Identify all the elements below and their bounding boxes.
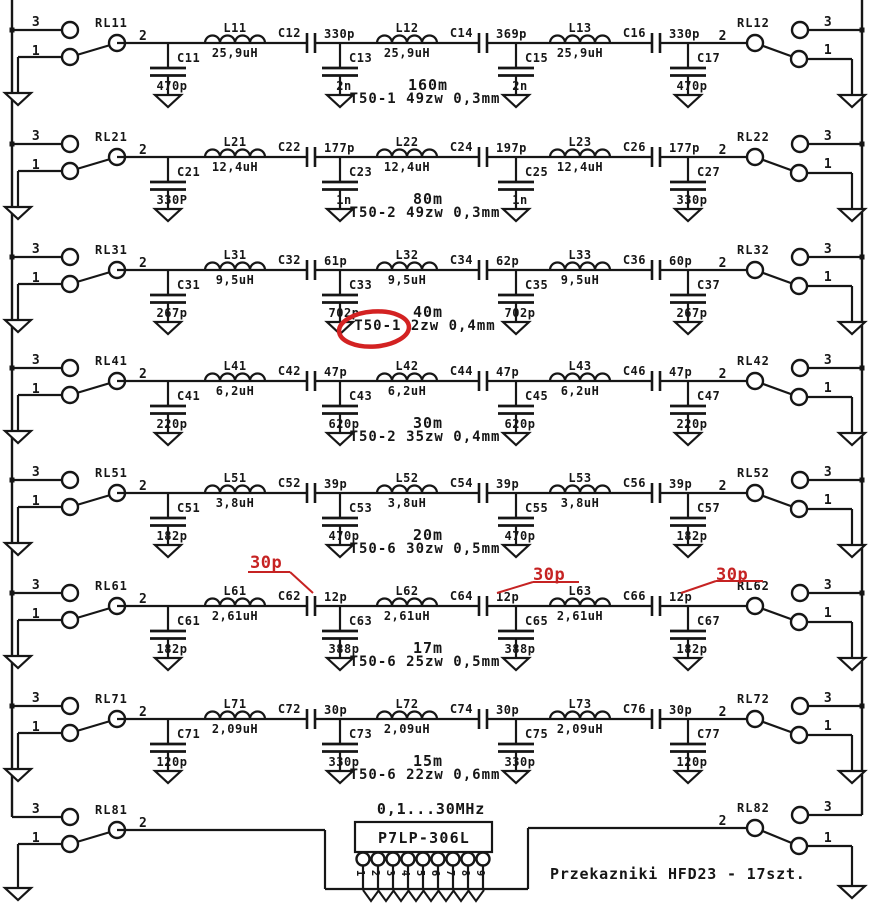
relay-pin-1-label: 1: [32, 494, 40, 509]
inductor-ref: L31: [223, 248, 246, 262]
capacitor-value: 30p: [496, 703, 519, 717]
relay-pin-2-label: 2: [719, 367, 727, 382]
relay-contact: [62, 49, 78, 65]
inductor-ref: L11: [223, 21, 246, 35]
capacitor-value: 470p: [505, 529, 536, 543]
relay-pin-1-label: 1: [32, 271, 40, 286]
inductor-ref: L63: [568, 584, 591, 598]
capacitor-ref: C33: [349, 278, 372, 292]
relay-pin-2-label: 2: [139, 256, 147, 271]
relay-pin-3-label: 3: [32, 129, 40, 144]
relay-contact: [792, 249, 808, 265]
toroid-winding-label: T50-6 22zw 0,6mm: [350, 767, 501, 783]
relay-ref-label: RL51: [95, 466, 128, 480]
junction-dot: [860, 255, 865, 260]
junction-dot: [860, 366, 865, 371]
relay-ref-label: RL42: [737, 354, 770, 368]
toroid-winding-label: T50-6 30zw 0,5mm: [350, 541, 501, 557]
connector-pin-number: 2: [369, 870, 381, 876]
connector-pin-number: 8: [459, 870, 471, 876]
relay-ref-label: RL81: [95, 803, 128, 817]
capacitor-ref: C34: [450, 253, 473, 267]
inductor-ref: L52: [395, 471, 418, 485]
capacitor-value: 182p: [677, 642, 708, 656]
relay-pin-2-label: 2: [719, 479, 727, 494]
inductor-ref: L12: [395, 21, 418, 35]
relay-contact: [791, 838, 807, 854]
connector-pin-circle: [462, 853, 475, 866]
capacitor-ref: C31: [177, 278, 200, 292]
relay-pin-1-label: 1: [824, 381, 832, 396]
relay-pin-3-label: 3: [824, 353, 832, 368]
relay-pin-1-label: 1: [824, 719, 832, 734]
capacitor-value: 30p: [669, 703, 692, 717]
capacitor-value: 182p: [157, 529, 188, 543]
relay-ref-label: RL52: [737, 466, 770, 480]
inductor-ref: L23: [568, 135, 591, 149]
relay-contact: [791, 165, 807, 181]
capacitor-ref: C36: [623, 253, 646, 267]
capacitor-value: 12p: [669, 590, 692, 604]
relay-pin-1-label: 1: [824, 157, 832, 172]
relay-contact: [791, 278, 807, 294]
relay-contact: [792, 22, 808, 38]
capacitor-ref: C27: [697, 165, 720, 179]
relay-ref-label: RL82: [737, 801, 770, 815]
capacitor-ref: C13: [349, 51, 372, 65]
relay-contact: [62, 585, 78, 601]
relay-pin-3-label: 3: [824, 465, 832, 480]
inductor-ref: L41: [223, 359, 246, 373]
capacitor-value: 267p: [677, 306, 708, 320]
connector-pin-circle: [372, 853, 385, 866]
capacitor-ref: C52: [278, 476, 301, 490]
capacitor-ref: C77: [697, 727, 720, 741]
frequency-range-label: 0,1...30MHz: [377, 800, 485, 818]
relay-pin-3-label: 3: [32, 465, 40, 480]
relay-contact: [62, 387, 78, 403]
inductor-value: 3,8uH: [388, 496, 427, 510]
capacitor-ref: C66: [623, 589, 646, 603]
capacitor-ref: C65: [525, 614, 548, 628]
capacitor-ref: C41: [177, 389, 200, 403]
junction-dot: [10, 591, 15, 596]
capacitor-value: 182p: [157, 642, 188, 656]
junction-dot: [860, 142, 865, 147]
capacitor-value: 330p: [669, 27, 700, 41]
inductor-value: 2,61uH: [557, 609, 603, 623]
inductor-ref: L61: [223, 584, 246, 598]
capacitor-ref: C14: [450, 26, 473, 40]
relay-contact: [792, 360, 808, 376]
relay-pin-1-label: 1: [824, 270, 832, 285]
inductor-value: 2,09uH: [384, 722, 430, 736]
relay-common: [747, 262, 763, 278]
capacitor-ref: C64: [450, 589, 473, 603]
junction-dot: [10, 255, 15, 260]
relay-ref-label: RL31: [95, 243, 128, 257]
relay-ref-label: RL12: [737, 16, 770, 30]
relay-pin-2-label: 2: [139, 143, 147, 158]
capacitor-ref: C75: [525, 727, 548, 741]
capacitor-value: 39p: [324, 477, 347, 491]
capacitor-value: 702p: [505, 306, 536, 320]
junction-dot: [10, 142, 15, 147]
connector-pin-circle: [357, 853, 370, 866]
inductor-value: 3,8uH: [216, 496, 255, 510]
capacitor-ref: C74: [450, 702, 473, 716]
inductor-value: 12,4uH: [557, 160, 603, 174]
relay-common: [747, 149, 763, 165]
relay-note: Przekazniki HFD23 - 17szt.: [550, 865, 806, 883]
junction-dot: [860, 478, 865, 483]
relay-pin-2-label: 2: [719, 256, 727, 271]
capacitor-ref: C17: [697, 51, 720, 65]
capacitor-value: 182p: [677, 529, 708, 543]
relay-contact: [792, 136, 808, 152]
relay-pin-1-label: 1: [824, 493, 832, 508]
capacitor-ref: C45: [525, 389, 548, 403]
inductor-ref: L13: [568, 21, 591, 35]
relay-ref-label: RL11: [95, 16, 128, 30]
relay-common: [747, 373, 763, 389]
capacitor-value: 177p: [324, 141, 355, 155]
inductor-ref: L33: [568, 248, 591, 262]
inductor-value: 2,61uH: [212, 609, 258, 623]
capacitor-ref: C22: [278, 140, 301, 154]
schematic-page: 312RL11C11470pC132nC152nC17470pL1125,9uH…: [0, 0, 870, 905]
toroid-winding-label: T50-2 49zw 0,3mm: [350, 205, 501, 221]
relay-contact: [791, 614, 807, 630]
capacitor-value: 330P: [157, 193, 188, 207]
connector-pin-circle: [402, 853, 415, 866]
capacitor-ref: C32: [278, 253, 301, 267]
connector-pin-number: 5: [414, 870, 426, 876]
relay-contact: [792, 698, 808, 714]
schematic-canvas: 312RL11C11470pC132nC152nC17470pL1125,9uH…: [0, 0, 870, 905]
relay-pin-1-label: 1: [32, 382, 40, 397]
capacitor-value: 330p: [324, 27, 355, 41]
relay-contact: [791, 501, 807, 517]
relay-pin-1-label: 1: [824, 606, 832, 621]
relay-pin-2-label: 2: [719, 705, 727, 720]
junction-dot: [860, 704, 865, 709]
relay-pin-2-label: 2: [139, 816, 147, 831]
relay-pin-3-label: 3: [824, 691, 832, 706]
capacitor-value: 47p: [669, 365, 692, 379]
connector-name-label: P7LP-306L: [378, 829, 470, 847]
capacitor-value: 330p: [505, 755, 536, 769]
capacitor-ref: C55: [525, 501, 548, 515]
relay-contact: [62, 163, 78, 179]
capacitor-value: 388p: [505, 642, 536, 656]
relay-pin-3-label: 3: [824, 129, 832, 144]
relay-pin-3-label: 3: [32, 802, 40, 817]
relay-contact: [62, 499, 78, 515]
capacitor-ref: C76: [623, 702, 646, 716]
relay-ref-label: RL22: [737, 130, 770, 144]
connector-pin-number: 3: [384, 870, 396, 876]
capacitor-ref: C12: [278, 26, 301, 40]
capacitor-ref: C44: [450, 364, 473, 378]
relay-contact: [62, 472, 78, 488]
relay-pin-1-label: 1: [824, 43, 832, 58]
connector-pin-circle: [432, 853, 445, 866]
inductor-ref: L32: [395, 248, 418, 262]
capacitor-value: 47p: [324, 365, 347, 379]
capacitor-ref: C62: [278, 589, 301, 603]
relay-contact: [62, 809, 78, 825]
relay-ref-label: RL21: [95, 130, 128, 144]
inductor-value: 25,9uH: [384, 46, 430, 60]
relay-contact: [62, 360, 78, 376]
relay-pin-3-label: 3: [824, 578, 832, 593]
junction-dot: [860, 591, 865, 596]
relay-contact: [791, 51, 807, 67]
inductor-value: 25,9uH: [212, 46, 258, 60]
inductor-value: 2,09uH: [212, 722, 258, 736]
toroid-winding-label: T50-1 49zw 0,3mm: [350, 91, 501, 107]
capacitor-ref: C54: [450, 476, 473, 490]
capacitor-value: 61p: [324, 254, 347, 268]
junction-dot: [10, 704, 15, 709]
relay-pin-1-label: 1: [824, 831, 832, 846]
inductor-value: 25,9uH: [557, 46, 603, 60]
connector-pin-number: 1: [354, 870, 366, 876]
capacitor-value: 470p: [677, 79, 708, 93]
relay-pin-2-label: 2: [719, 29, 727, 44]
relay-contact: [62, 698, 78, 714]
capacitor-ref: C51: [177, 501, 200, 515]
connector-pin-circle: [417, 853, 430, 866]
relay-common: [747, 820, 763, 836]
relay-contact: [792, 472, 808, 488]
inductor-ref: L21: [223, 135, 246, 149]
relay-pin-1-label: 1: [32, 831, 40, 846]
junction-dot: [10, 478, 15, 483]
inductor-ref: L53: [568, 471, 591, 485]
capacitor-value: 220p: [677, 417, 708, 431]
capacitor-ref: C24: [450, 140, 473, 154]
capacitor-value: 120p: [157, 755, 188, 769]
capacitor-ref: C71: [177, 727, 200, 741]
relay-contact: [62, 22, 78, 38]
capacitor-ref: C73: [349, 727, 372, 741]
capacitor-ref: C57: [697, 501, 720, 515]
relay-contact: [62, 725, 78, 741]
relay-contact: [62, 249, 78, 265]
relay-pin-3-label: 3: [824, 800, 832, 815]
inductor-ref: L71: [223, 697, 246, 711]
relay-ref-label: RL72: [737, 692, 770, 706]
capacitor-value: 620p: [505, 417, 536, 431]
relay-pin-1-label: 1: [32, 607, 40, 622]
inductor-value: 6,2uH: [216, 384, 255, 398]
inductor-value: 3,8uH: [561, 496, 600, 510]
capacitor-value: 1n: [512, 193, 527, 207]
relay-pin-1-label: 1: [32, 158, 40, 173]
junction-dot: [10, 366, 15, 371]
relay-pin-2-label: 2: [719, 814, 727, 829]
connector-pin-number: 4: [399, 870, 411, 876]
capacitor-ref: C46: [623, 364, 646, 378]
inductor-ref: L72: [395, 697, 418, 711]
capacitor-ref: C35: [525, 278, 548, 292]
capacitor-ref: C53: [349, 501, 372, 515]
capacitor-value: 220p: [157, 417, 188, 431]
inductor-ref: L62: [395, 584, 418, 598]
inductor-value: 6,2uH: [561, 384, 600, 398]
relay-contact: [792, 585, 808, 601]
capacitor-ref: C42: [278, 364, 301, 378]
capacitor-ref: C21: [177, 165, 200, 179]
connector-pin-number: 7: [444, 870, 456, 876]
relay-pin-3-label: 3: [32, 242, 40, 257]
capacitor-value: 47p: [496, 365, 519, 379]
capacitor-value: 12p: [324, 590, 347, 604]
relay-pin-2-label: 2: [139, 29, 147, 44]
capacitor-ref: C63: [349, 614, 372, 628]
inductor-value: 9,5uH: [388, 273, 427, 287]
relay-pin-3-label: 3: [824, 242, 832, 257]
connector-pin-circle: [387, 853, 400, 866]
toroid-winding-label: T50-2 35zw 0,4mm: [350, 429, 501, 445]
capacitor-ref: C11: [177, 51, 200, 65]
capacitor-ref: C23: [349, 165, 372, 179]
capacitor-ref: C61: [177, 614, 200, 628]
capacitor-value: 62p: [496, 254, 519, 268]
toroid-winding-label: T50-1 2zw 0,4mm: [354, 318, 495, 334]
relay-common: [747, 711, 763, 727]
relay-pin-3-label: 3: [32, 15, 40, 30]
capacitor-ref: C25: [525, 165, 548, 179]
relay-contact: [62, 276, 78, 292]
capacitor-value: 369p: [496, 27, 527, 41]
inductor-value: 12,4uH: [212, 160, 258, 174]
relay-ref-label: RL71: [95, 692, 128, 706]
inductor-ref: L42: [395, 359, 418, 373]
capacitor-ref: C67: [697, 614, 720, 628]
connector-pin-circle: [447, 853, 460, 866]
relay-pin-2-label: 2: [139, 592, 147, 607]
relay-pin-2-label: 2: [139, 367, 147, 382]
relay-pin-3-label: 3: [32, 578, 40, 593]
inductor-value: 6,2uH: [388, 384, 427, 398]
relay-pin-3-label: 3: [32, 691, 40, 706]
relay-common: [747, 35, 763, 51]
relay-pin-2-label: 2: [139, 479, 147, 494]
junction-dot: [10, 28, 15, 33]
relay-pin-2-label: 2: [139, 705, 147, 720]
relay-pin-2-label: 2: [719, 143, 727, 158]
capacitor-ref: C43: [349, 389, 372, 403]
relay-pin-1-label: 1: [32, 44, 40, 59]
red-30p-annotation: 30p: [250, 553, 282, 573]
capacitor-ref: C56: [623, 476, 646, 490]
relay-contact: [62, 136, 78, 152]
inductor-ref: L73: [568, 697, 591, 711]
capacitor-value: 177p: [669, 141, 700, 155]
inductor-value: 2,09uH: [557, 722, 603, 736]
capacitor-ref: C47: [697, 389, 720, 403]
inductor-ref: L51: [223, 471, 246, 485]
relay-pin-3-label: 3: [824, 15, 832, 30]
inductor-value: 9,5uH: [216, 273, 255, 287]
capacitor-value: 60p: [669, 254, 692, 268]
relay-contact: [62, 612, 78, 628]
capacitor-ref: C15: [525, 51, 548, 65]
capacitor-ref: C37: [697, 278, 720, 292]
inductor-value: 12,4uH: [384, 160, 430, 174]
relay-pin-1-label: 1: [32, 720, 40, 735]
connector-pin-number: 6: [429, 870, 441, 876]
capacitor-value: 120p: [677, 755, 708, 769]
relay-common: [747, 485, 763, 501]
capacitor-value: 267p: [157, 306, 188, 320]
junction-dot: [860, 28, 865, 33]
relay-ref-label: RL32: [737, 243, 770, 257]
relay-contact: [792, 807, 808, 823]
capacitor-ref: C16: [623, 26, 646, 40]
capacitor-value: 330p: [677, 193, 708, 207]
capacitor-value: 470p: [157, 79, 188, 93]
capacitor-ref: C72: [278, 702, 301, 716]
inductor-ref: L43: [568, 359, 591, 373]
connector-pin-circle: [477, 853, 490, 866]
inductor-ref: L22: [395, 135, 418, 149]
relay-ref-label: RL41: [95, 354, 128, 368]
capacitor-value: 2n: [512, 79, 527, 93]
connector-pin-number: 9: [474, 870, 486, 876]
capacitor-value: 39p: [669, 477, 692, 491]
relay-contact: [791, 727, 807, 743]
toroid-winding-label: T50-6 25zw 0,5mm: [350, 654, 501, 670]
inductor-value: 9,5uH: [561, 273, 600, 287]
relay-pin-3-label: 3: [32, 353, 40, 368]
relay-common: [747, 598, 763, 614]
capacitor-ref: C26: [623, 140, 646, 154]
relay-contact: [791, 389, 807, 405]
relay-contact: [62, 836, 78, 852]
capacitor-value: 39p: [496, 477, 519, 491]
capacitor-value: 30p: [324, 703, 347, 717]
relay-ref-label: RL61: [95, 579, 128, 593]
capacitor-value: 197p: [496, 141, 527, 155]
inductor-value: 2,61uH: [384, 609, 430, 623]
